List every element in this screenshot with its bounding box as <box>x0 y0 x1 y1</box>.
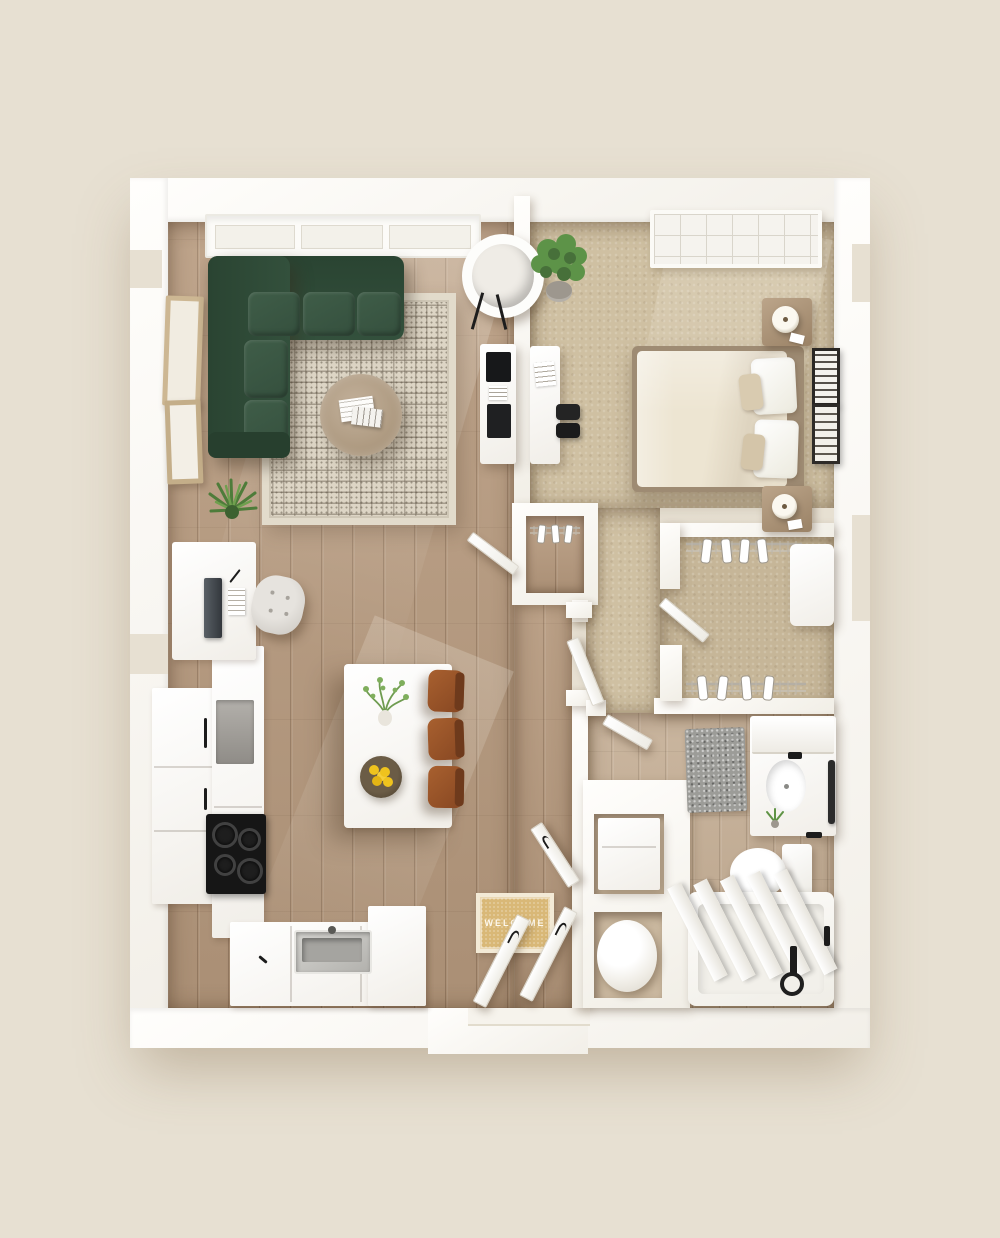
burner <box>237 858 263 884</box>
wall-notch-left-top <box>130 250 162 288</box>
nightstand-south <box>762 486 812 532</box>
shower-curtain <box>684 874 834 978</box>
wall-left <box>130 178 168 1048</box>
cabinet-seam <box>154 766 212 768</box>
closet-wire-rack-north <box>684 534 804 568</box>
bedroom-desk <box>530 346 560 464</box>
nightstand-book <box>789 332 805 344</box>
desk-chair-black <box>556 404 580 420</box>
sink-faucet-black <box>788 752 802 759</box>
door-jamb-tab-upper <box>566 602 592 618</box>
stool-back <box>455 768 465 806</box>
tv-screen <box>486 352 511 382</box>
laptop <box>204 578 222 638</box>
bedroom-window-gridded <box>650 210 822 268</box>
pen <box>229 569 240 583</box>
lemon-bowl <box>360 756 402 798</box>
bath-mat <box>685 727 748 813</box>
bathroom-vanity <box>750 716 836 836</box>
water-heater-cylinder <box>597 920 657 992</box>
pouf-tufts <box>270 590 275 595</box>
counter-seam <box>214 806 262 808</box>
fridge-handle <box>204 718 207 748</box>
vanity-plant <box>762 804 788 832</box>
console-electronics <box>487 404 511 438</box>
counter-left-run <box>212 646 264 938</box>
window-pane <box>301 225 383 249</box>
gallery-frame <box>812 348 840 406</box>
lamp-finial <box>782 504 787 509</box>
bedroom-plant <box>526 230 592 308</box>
window-pane <box>215 225 295 249</box>
wall-notch-left-mid <box>130 634 168 674</box>
lamp-finial <box>783 317 788 322</box>
wall-notch-right-top <box>852 244 870 302</box>
sofa-cushion <box>244 340 288 398</box>
wall-oven-front <box>216 700 254 764</box>
burner <box>214 854 236 876</box>
counter-return <box>368 906 426 1006</box>
sink-drain <box>784 784 789 789</box>
window-pane <box>389 225 471 249</box>
washer-seam <box>602 846 656 848</box>
wall-notch-right-mid <box>852 515 870 621</box>
notebook <box>228 588 245 615</box>
shower-fixture-black <box>824 926 830 946</box>
wall-closet-west-lower <box>660 645 682 701</box>
island-stool <box>427 669 464 712</box>
burner <box>212 822 238 848</box>
toilet-paper-holder <box>806 832 822 838</box>
lemons <box>369 765 379 775</box>
coat-closet-wire-shelf <box>528 520 582 548</box>
drawer-handle <box>258 955 268 964</box>
desk-papers <box>534 361 556 387</box>
door-handle <box>541 834 554 849</box>
bed <box>632 346 814 492</box>
magazine <box>351 406 383 428</box>
cabinet-handle <box>204 788 207 810</box>
kitchen-sink <box>294 930 372 974</box>
burner <box>238 828 261 851</box>
floor-plan-canvas: WELCOME <box>0 0 1000 1238</box>
sink-basin <box>302 938 362 962</box>
desk-chair-black-back <box>556 423 580 438</box>
stool-back <box>454 672 464 710</box>
counter-seam <box>290 926 292 1002</box>
nightstand-book <box>787 519 802 530</box>
cabinet-seam <box>154 830 212 832</box>
nook-desk <box>172 542 256 660</box>
wall-art-frame-1 <box>162 295 204 406</box>
island-stool <box>427 717 464 760</box>
island-vase-greenery <box>360 674 410 730</box>
vanity-mirror-ledge <box>752 718 834 754</box>
sink-faucet <box>328 926 336 934</box>
sofa-cushion <box>303 292 355 336</box>
sofa-cushion <box>248 292 300 336</box>
fridge-tall-cabinets <box>152 688 214 904</box>
accent-pillow-tan <box>738 373 764 411</box>
sofa-cushion <box>357 292 401 336</box>
washer-unit <box>598 818 660 890</box>
nightstand-north <box>762 298 812 346</box>
island-stool <box>428 766 465 809</box>
wall-closet-west-upper <box>660 523 680 589</box>
sofa-arm <box>208 432 290 458</box>
tub-drain-black <box>780 972 804 996</box>
console-note <box>489 386 507 400</box>
wall-art-frame-2 <box>165 399 204 484</box>
living-room-plant <box>204 476 260 536</box>
cooktop <box>206 814 266 894</box>
media-console <box>480 344 516 464</box>
stool-back <box>454 719 464 757</box>
gallery-frame <box>812 404 840 464</box>
living-room-window <box>205 214 481 258</box>
closet-wire-rack-south <box>684 672 808 706</box>
entry-threshold <box>468 1008 590 1026</box>
towel-bar-black <box>828 760 835 824</box>
closet-dresser <box>790 544 834 626</box>
accent-pillow-tan <box>740 433 766 471</box>
